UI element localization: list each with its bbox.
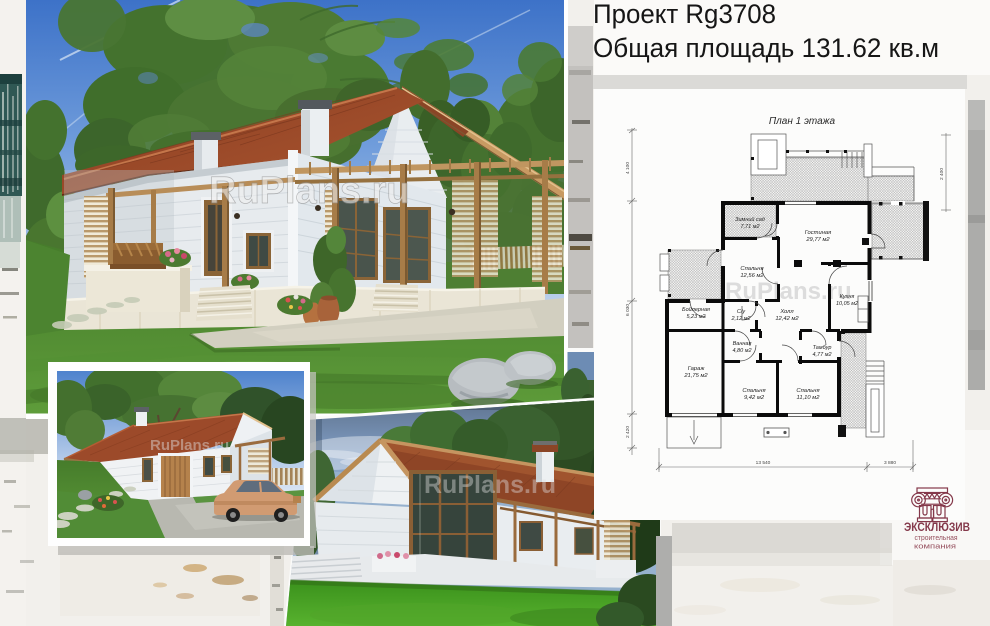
svg-text:13 540: 13 540 <box>756 460 771 466</box>
svg-text:RuPlans.ru: RuPlans.ru <box>150 437 229 454</box>
svg-text:7,71 м2: 7,71 м2 <box>740 224 759 230</box>
svg-text:компания: компания <box>914 542 956 551</box>
svg-text:2 420: 2 420 <box>625 426 631 438</box>
svg-text:11,10 м2: 11,10 м2 <box>797 395 821 401</box>
svg-text:Гостиная: Гостиная <box>805 230 832 236</box>
svg-text:С/у: С/у <box>737 309 747 315</box>
svg-text:29,77 м2: 29,77 м2 <box>805 237 830 243</box>
svg-text:Спальня: Спальня <box>796 388 819 394</box>
svg-text:Холл: Холл <box>779 309 794 315</box>
svg-text:RuPlans.ru: RuPlans.ru <box>209 170 410 212</box>
svg-text:10,05 м2: 10,05 м2 <box>836 301 858 307</box>
svg-text:Тамбур: Тамбур <box>813 345 832 351</box>
svg-text:2,12 м2: 2,12 м2 <box>730 316 750 322</box>
svg-text:Гараж: Гараж <box>688 366 706 372</box>
svg-text:Спальня: Спальня <box>740 266 763 272</box>
svg-text:5,23 м2: 5,23 м2 <box>686 314 705 320</box>
svg-text:Проект Rg3708: Проект Rg3708 <box>593 0 776 29</box>
svg-text:3 880: 3 880 <box>884 460 896 466</box>
svg-text:2 400: 2 400 <box>939 168 945 180</box>
svg-text:4,80 м2: 4,80 м2 <box>732 348 751 354</box>
svg-text:ЭКСКЛЮЗИВ: ЭКСКЛЮЗИВ <box>904 520 970 534</box>
svg-text:12,42 м2: 12,42 м2 <box>775 316 799 322</box>
svg-text:12,56 м2: 12,56 м2 <box>740 273 764 279</box>
svg-text:RuPlans.ru: RuPlans.ru <box>424 471 556 499</box>
svg-text:6 030: 6 030 <box>625 304 631 316</box>
svg-text:21,75 м2: 21,75 м2 <box>683 373 708 379</box>
svg-text:Общая площадь 131.62 кв.м: Общая площадь 131.62 кв.м <box>593 33 939 63</box>
svg-text:Спальня: Спальня <box>742 388 765 394</box>
svg-text:План 1 этажа: План 1 этажа <box>769 116 836 127</box>
svg-text:Кухня: Кухня <box>840 294 855 300</box>
svg-text:9,42 м2: 9,42 м2 <box>744 395 765 401</box>
svg-text:4,77 м2: 4,77 м2 <box>812 352 831 358</box>
svg-text:Ванная: Ванная <box>733 341 752 347</box>
svg-text:Зимний сад: Зимний сад <box>735 216 765 223</box>
svg-text:4 100: 4 100 <box>625 162 631 174</box>
svg-text:Бойлерная: Бойлерная <box>682 306 710 313</box>
